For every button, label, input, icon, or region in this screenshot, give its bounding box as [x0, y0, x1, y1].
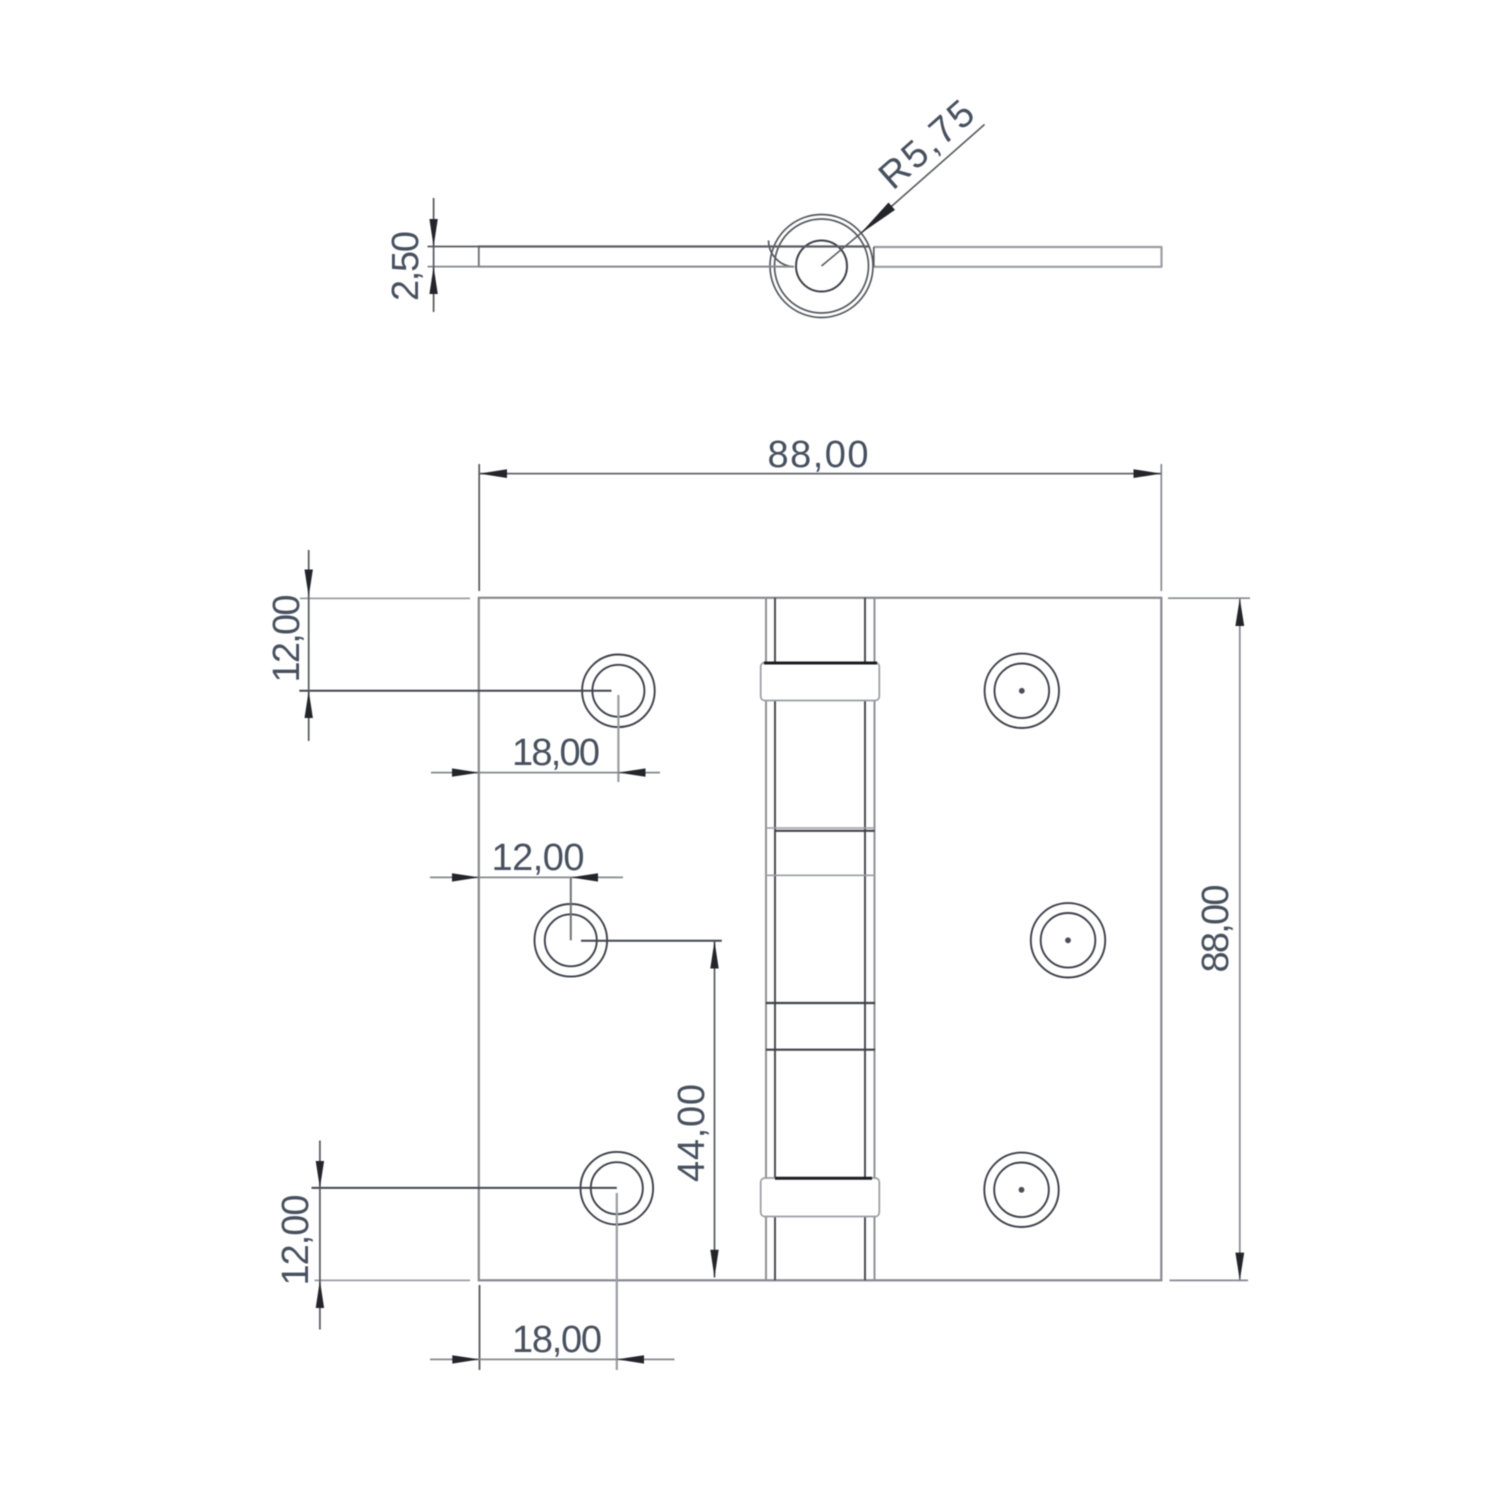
svg-text:12,00: 12,00	[492, 837, 585, 879]
svg-text:12,00: 12,00	[275, 1195, 317, 1286]
svg-text:12,00: 12,00	[266, 595, 308, 683]
svg-text:44,00: 44,00	[671, 1084, 713, 1182]
svg-text:88,00: 88,00	[768, 434, 869, 476]
svg-text:88,00: 88,00	[1195, 885, 1237, 973]
svg-text:18,00: 18,00	[512, 1319, 602, 1361]
svg-text:18,00: 18,00	[512, 732, 600, 774]
svg-text:2,50: 2,50	[385, 231, 427, 301]
